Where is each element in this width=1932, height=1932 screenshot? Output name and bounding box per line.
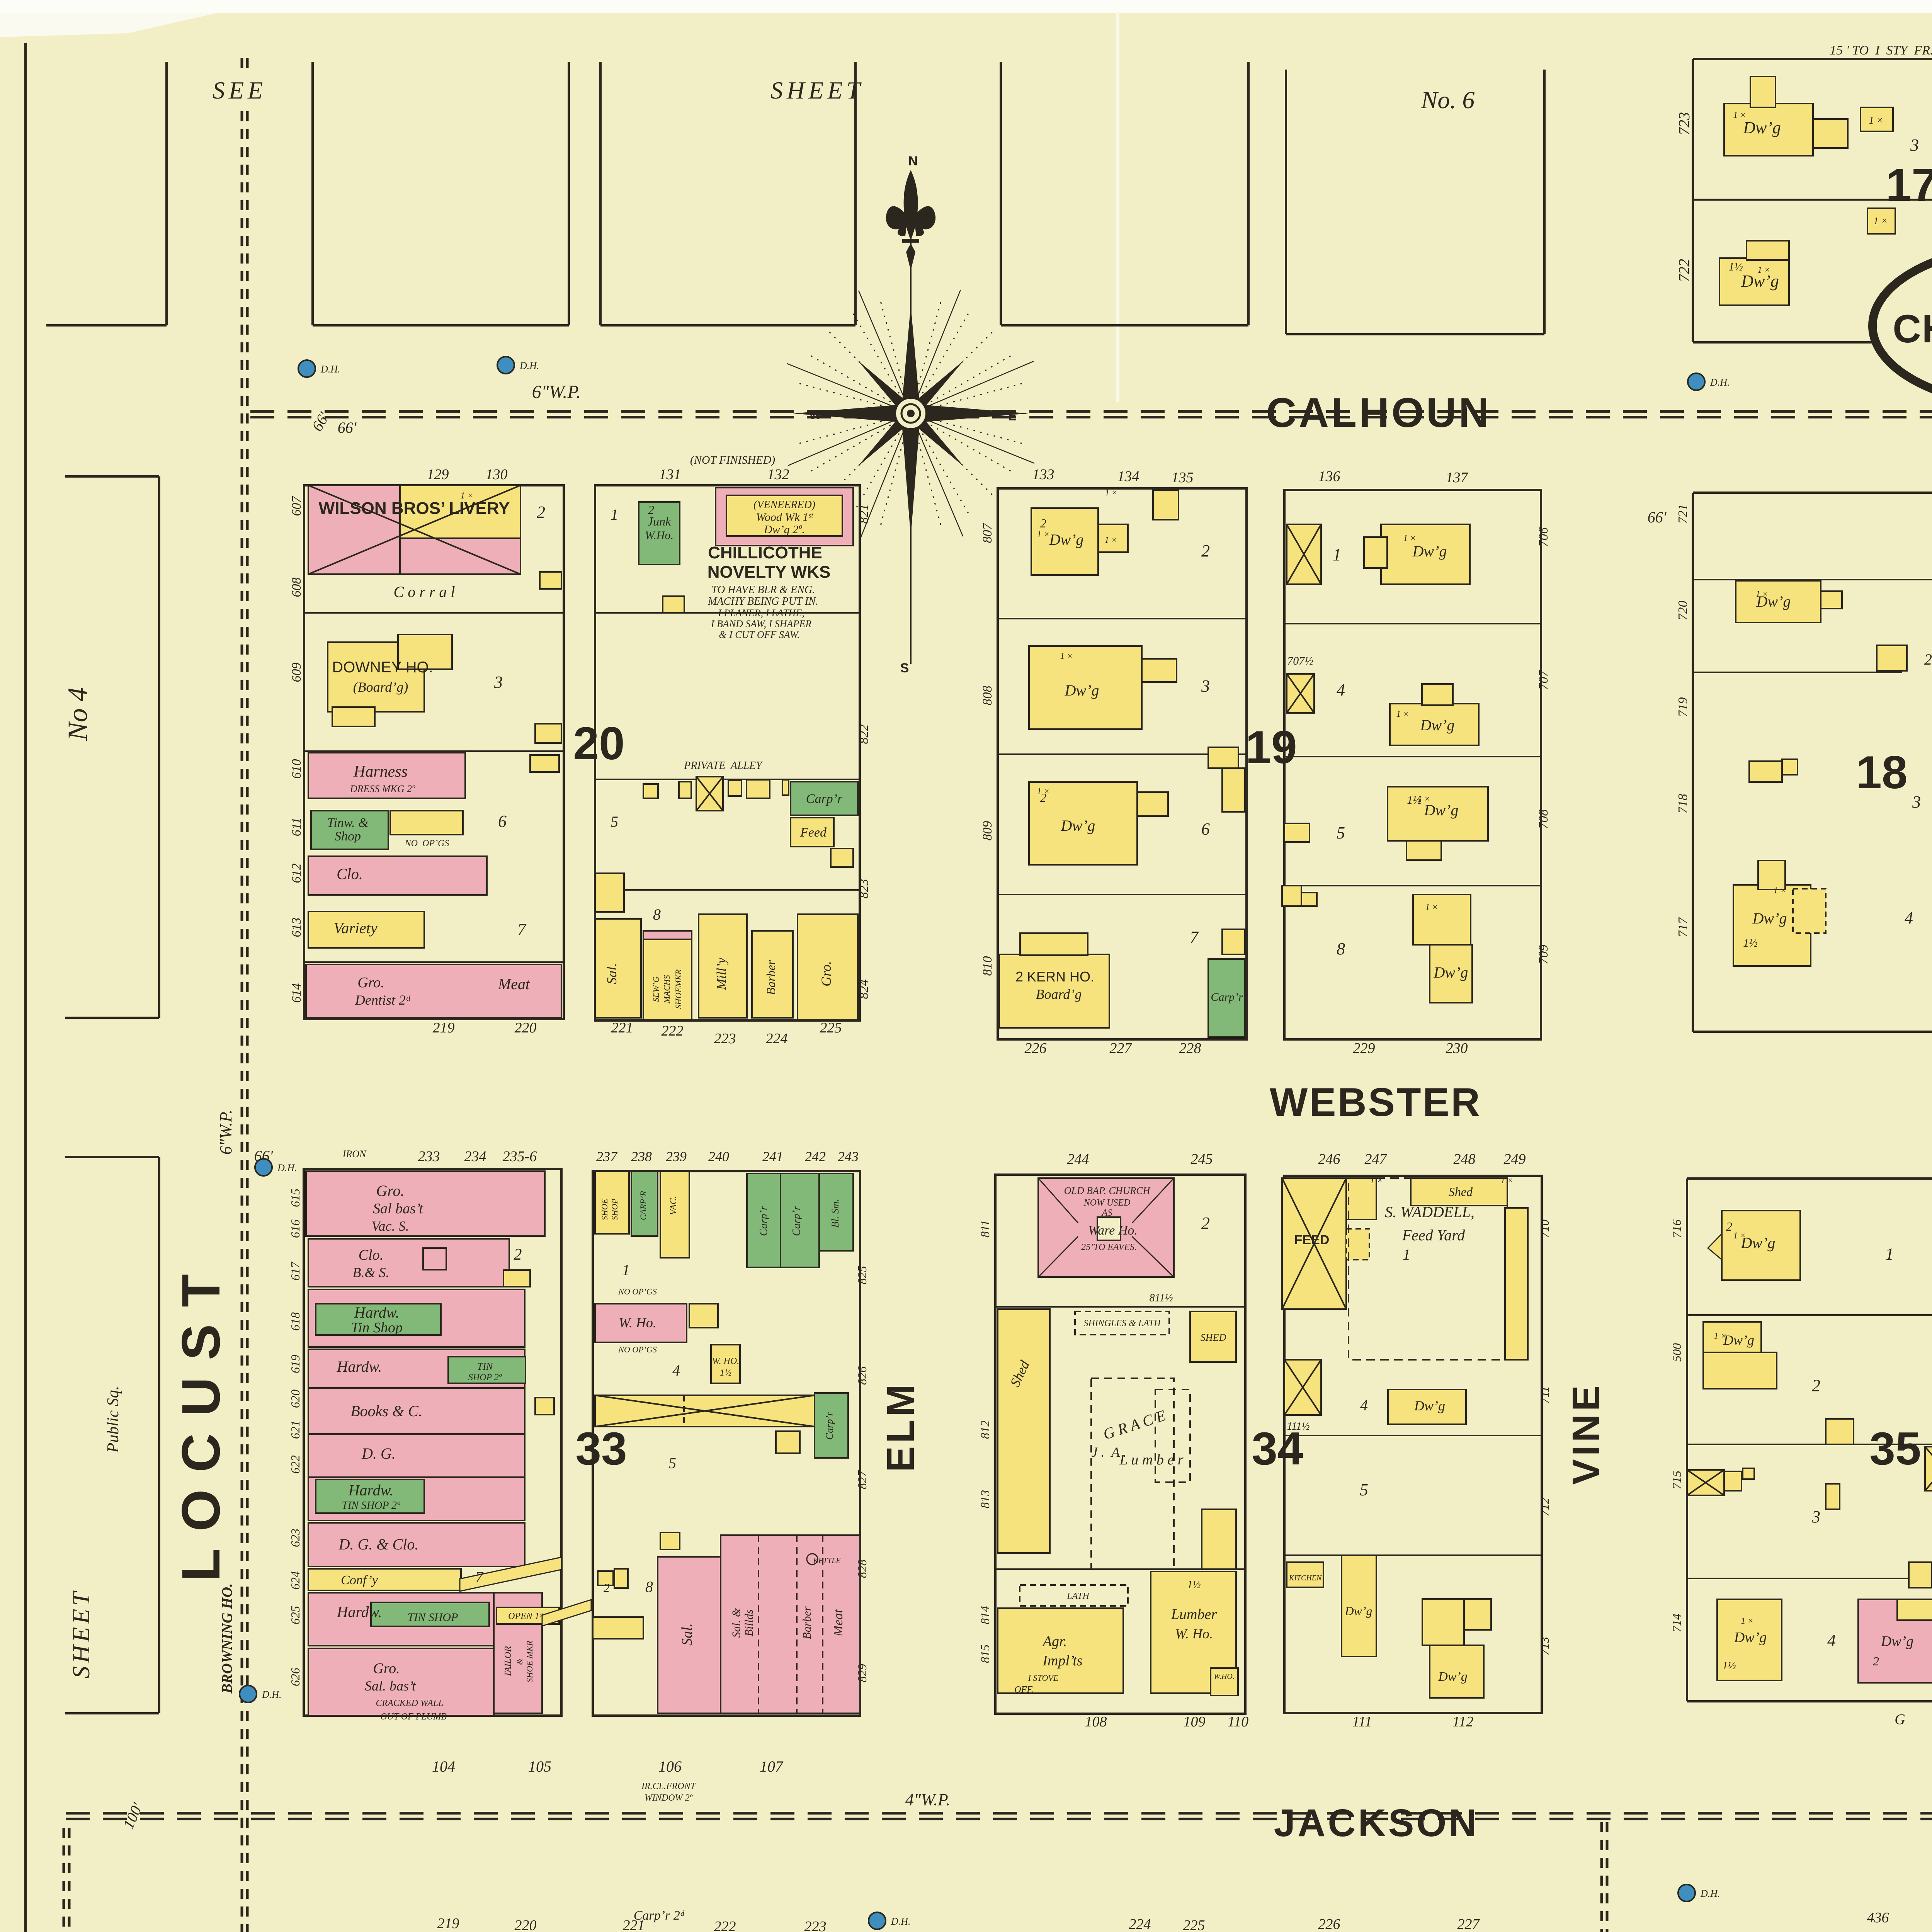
svg-text:Shed: Shed (1449, 1185, 1473, 1199)
svg-text:Public Sq.: Public Sq. (104, 1386, 122, 1453)
svg-text:CARP’R: CARP’R (638, 1191, 648, 1220)
svg-text:Mill’y: Mill’y (714, 957, 729, 990)
svg-text:Dw’g: Dw’g (1424, 801, 1459, 819)
svg-text:625: 625 (288, 1606, 302, 1624)
svg-text:8: 8 (645, 1578, 653, 1595)
svg-text:VAC.: VAC. (668, 1196, 679, 1215)
svg-text:230: 230 (1446, 1040, 1468, 1056)
svg-text:248: 248 (1454, 1151, 1476, 1167)
svg-text:221: 221 (611, 1020, 633, 1036)
svg-text:Dw’g: Dw’g (1881, 1633, 1913, 1650)
svg-text:D.H.: D.H. (320, 364, 340, 375)
svg-text:MACHY BEING PUT IN.: MACHY BEING PUT IN. (707, 595, 818, 607)
svg-text:WEBSTER: WEBSTER (1270, 1080, 1481, 1125)
svg-text:Carp’r: Carp’r (824, 1412, 835, 1440)
svg-text:1 ×: 1 × (1037, 529, 1050, 539)
svg-text:718: 718 (1676, 794, 1690, 814)
svg-text:106: 106 (658, 1758, 682, 1775)
svg-text:1 ×: 1 × (1758, 265, 1770, 275)
svg-text:Gro.: Gro. (373, 1660, 400, 1677)
svg-text:3: 3 (494, 673, 503, 692)
svg-text:823: 823 (857, 879, 871, 899)
svg-text:Dw’g: Dw’g (1434, 964, 1468, 981)
svg-text:812: 812 (978, 1420, 992, 1439)
svg-text:Dw’g: Dw’g (1438, 1670, 1468, 1684)
svg-text:714: 714 (1670, 1614, 1684, 1632)
svg-text:SHED: SHED (1201, 1332, 1226, 1343)
svg-text:1 ×: 1 × (1370, 1175, 1383, 1185)
svg-text:SHOE MKR: SHOE MKR (525, 1640, 534, 1682)
svg-text:LATH: LATH (1066, 1591, 1090, 1601)
svg-text:VINE: VINE (1565, 1382, 1608, 1485)
svg-text:W. Ho.: W. Ho. (619, 1315, 656, 1330)
svg-text:LOCUST: LOCUST (170, 1257, 231, 1582)
svg-text:Feed Yard: Feed Yard (1402, 1226, 1466, 1244)
svg-text:706: 706 (1536, 527, 1551, 547)
svg-text:8: 8 (1337, 939, 1345, 958)
svg-text:4: 4 (672, 1362, 680, 1379)
svg-text:Tin Shop: Tin Shop (351, 1320, 403, 1336)
svg-text:813: 813 (978, 1490, 992, 1509)
svg-text:Ware Ho.: Ware Ho. (1088, 1223, 1138, 1238)
svg-text:S: S (900, 661, 909, 675)
svg-text:244: 244 (1067, 1151, 1089, 1167)
svg-text:Hardw.: Hardw. (354, 1304, 400, 1321)
svg-text:Books & C.: Books & C. (350, 1402, 422, 1420)
svg-text:233: 233 (418, 1148, 440, 1165)
svg-text:110: 110 (1228, 1714, 1248, 1730)
svg-text:829: 829 (855, 1664, 869, 1682)
svg-text:709: 709 (1536, 945, 1551, 964)
svg-text:D. G. & Clo.: D. G. & Clo. (338, 1536, 419, 1553)
svg-text:I BAND SAW, I SHAPER: I BAND SAW, I SHAPER (711, 618, 811, 629)
svg-text:1 ×: 1 × (1774, 886, 1786, 895)
svg-text:ELM: ELM (879, 1381, 922, 1472)
svg-text:1½: 1½ (1187, 1579, 1201, 1591)
svg-text:B.& S.: B.& S. (353, 1265, 389, 1280)
svg-text:229: 229 (1353, 1040, 1375, 1056)
svg-text:DRESS MKG 2º: DRESS MKG 2º (350, 783, 415, 794)
svg-text:825: 825 (855, 1266, 869, 1284)
svg-text:222: 222 (714, 1918, 736, 1932)
svg-text:Sal bas’t: Sal bas’t (373, 1201, 423, 1217)
svg-text:612: 612 (289, 864, 304, 883)
svg-text:249: 249 (1504, 1151, 1526, 1167)
svg-text:G: G (1895, 1711, 1905, 1728)
svg-text:614: 614 (289, 983, 304, 1003)
svg-text:224: 224 (1129, 1916, 1151, 1932)
svg-text:811½: 811½ (1150, 1292, 1173, 1304)
svg-text:137: 137 (1446, 469, 1469, 486)
svg-text:7: 7 (475, 1568, 484, 1586)
svg-text:Bl. Sm.: Bl. Sm. (830, 1199, 841, 1228)
svg-text:135: 135 (1172, 469, 1194, 486)
svg-text:W. HO.: W. HO. (712, 1356, 739, 1366)
svg-text:1: 1 (1403, 1246, 1410, 1263)
svg-text:223: 223 (804, 1918, 827, 1932)
svg-text:2: 2 (1040, 516, 1046, 530)
svg-text:Hardw.: Hardw. (348, 1481, 394, 1499)
svg-text:No 4: No 4 (62, 687, 93, 741)
svg-text:(NOT FINISHED): (NOT FINISHED) (690, 454, 775, 466)
svg-text:W. Ho.: W. Ho. (1175, 1626, 1213, 1641)
svg-text:SHEET: SHEET (770, 77, 864, 104)
svg-text:717: 717 (1676, 917, 1690, 937)
svg-text:107: 107 (760, 1758, 784, 1775)
svg-text:W: W (809, 408, 822, 422)
svg-text:CHILLICOTHE: CHILLICOTHE (708, 543, 822, 562)
svg-text:129: 129 (427, 466, 449, 483)
svg-text:4: 4 (1905, 908, 1913, 927)
svg-text:3: 3 (1811, 1507, 1820, 1526)
svg-text:(Board’g): (Board’g) (353, 679, 408, 695)
svg-text:66': 66' (1648, 509, 1667, 526)
svg-text:6"W.P.: 6"W.P. (216, 1110, 235, 1155)
svg-text:246: 246 (1318, 1151, 1340, 1167)
svg-text:TO HAVE BLR & ENG.: TO HAVE BLR & ENG. (711, 584, 815, 596)
svg-text:OPEN 1ˢᵗ: OPEN 1ˢᵗ (508, 1611, 544, 1621)
svg-text:Dw’g: Dw’g (1344, 1604, 1372, 1618)
svg-text:W.Ho.: W.Ho. (645, 529, 673, 542)
svg-text:NO OP’GS: NO OP’GS (405, 838, 449, 849)
svg-text:1 ×: 1 × (1741, 1616, 1754, 1626)
svg-text:35: 35 (1869, 1423, 1921, 1475)
svg-text:Sal.: Sal. (604, 963, 619, 984)
svg-text:CALHOUN: CALHOUN (1266, 389, 1491, 436)
svg-text:810: 810 (980, 956, 995, 976)
svg-text:132: 132 (767, 466, 789, 483)
svg-text:1 ×: 1 × (1060, 651, 1073, 661)
svg-text:4: 4 (1360, 1396, 1368, 1414)
svg-text:FEED: FEED (1294, 1233, 1330, 1247)
svg-text:Sal. bas’t: Sal. bas’t (365, 1678, 416, 1694)
svg-text:721: 721 (1676, 504, 1690, 524)
svg-text:6"W.P.: 6"W.P. (532, 382, 581, 402)
svg-text:436: 436 (1867, 1910, 1889, 1926)
svg-text:SHOE: SHOE (600, 1198, 609, 1220)
svg-text:607: 607 (289, 496, 304, 516)
svg-text:241: 241 (762, 1149, 783, 1164)
svg-text:WINDOW 2º: WINDOW 2º (645, 1793, 693, 1803)
svg-text:619: 619 (288, 1355, 302, 1373)
svg-text:624: 624 (288, 1571, 302, 1590)
svg-text:Lumber: Lumber (1171, 1606, 1217, 1622)
svg-text:219: 219 (433, 1020, 455, 1036)
svg-text:Sal.: Sal. (679, 1623, 695, 1646)
svg-text:BROWNING HO.: BROWNING HO. (219, 1583, 235, 1694)
svg-text:109: 109 (1184, 1714, 1206, 1730)
svg-text:2: 2 (1924, 651, 1932, 668)
svg-text:OFF.: OFF. (1014, 1685, 1034, 1695)
svg-text:I PLANER, I LATHE,: I PLANER, I LATHE, (718, 607, 804, 619)
svg-text:Clo.: Clo. (359, 1247, 383, 1263)
svg-text:Barber: Barber (764, 960, 778, 995)
svg-text:19: 19 (1245, 721, 1297, 773)
svg-text:Dw’g: Dw’g (1414, 1398, 1445, 1413)
svg-text:N: N (908, 154, 918, 168)
svg-text:622: 622 (288, 1455, 302, 1474)
svg-text:TAILOR: TAILOR (503, 1646, 513, 1677)
svg-text:DOWNEY HO.: DOWNEY HO. (332, 659, 433, 676)
svg-text:7: 7 (1190, 928, 1199, 947)
svg-text:AS: AS (1101, 1208, 1112, 1218)
svg-text:PRIVATE ALLEY: PRIVATE ALLEY (684, 760, 763, 772)
svg-text:811: 811 (978, 1220, 992, 1238)
svg-text:SHOP: SHOP (610, 1199, 619, 1220)
svg-text:NO OP’GS: NO OP’GS (618, 1287, 657, 1296)
svg-text:615: 615 (288, 1189, 302, 1207)
svg-text:1: 1 (611, 506, 618, 523)
svg-text:NOVELTY WKS: NOVELTY WKS (707, 563, 831, 582)
svg-text:715: 715 (1670, 1471, 1684, 1489)
svg-text:7: 7 (517, 920, 527, 939)
svg-text:18: 18 (1856, 747, 1907, 798)
svg-text:1 ×: 1 × (1105, 488, 1118, 497)
svg-text:L u m b e r: L u m b e r (1119, 1452, 1183, 1468)
svg-text:2: 2 (1812, 1376, 1820, 1395)
svg-text:Dw’g: Dw’g (1723, 1332, 1754, 1348)
svg-text:1 ×: 1 × (1418, 794, 1430, 804)
svg-text:108: 108 (1085, 1714, 1107, 1730)
svg-text:222: 222 (662, 1023, 684, 1039)
svg-text:3: 3 (1201, 677, 1210, 696)
svg-text:608: 608 (289, 578, 304, 597)
svg-text:TIN SHOP: TIN SHOP (408, 1611, 458, 1624)
svg-text:111½: 111½ (1287, 1420, 1310, 1432)
svg-text:Dw’g: Dw’g (1752, 910, 1787, 927)
svg-text:219: 219 (437, 1915, 459, 1932)
svg-text:713: 713 (1537, 1637, 1551, 1655)
svg-text:828: 828 (855, 1560, 869, 1578)
svg-text:1: 1 (622, 1261, 630, 1279)
svg-text:D.H.: D.H. (277, 1162, 297, 1173)
svg-text:SEE: SEE (213, 77, 267, 104)
svg-text:620: 620 (288, 1389, 302, 1408)
svg-text:808: 808 (980, 686, 995, 706)
svg-text:1 ×: 1 × (1396, 709, 1409, 719)
svg-text:225: 225 (820, 1020, 842, 1036)
svg-text:17: 17 (1886, 159, 1932, 211)
svg-text:Dw’g: Dw’g (1420, 716, 1455, 734)
svg-text:Board’g: Board’g (1036, 986, 1082, 1002)
svg-text:Dw’g: Dw’g (1061, 817, 1095, 834)
svg-text:Feed: Feed (800, 825, 827, 840)
svg-text:1½: 1½ (1728, 260, 1743, 273)
svg-text:Carp’r: Carp’r (806, 792, 843, 806)
svg-text:OUT OF PLUMB: OUT OF PLUMB (380, 1712, 447, 1722)
svg-text:228: 228 (1179, 1040, 1201, 1056)
svg-text:220: 220 (515, 1917, 537, 1932)
svg-text:D.H.: D.H. (1700, 1888, 1720, 1899)
svg-text:237: 237 (596, 1149, 618, 1164)
svg-text:2 KERN HO.: 2 KERN HO. (1015, 969, 1094, 985)
svg-text:1½: 1½ (1723, 1660, 1736, 1672)
svg-text:Billds: Billds (743, 1609, 755, 1636)
svg-text:(VENEERED): (VENEERED) (753, 499, 815, 511)
svg-text:821: 821 (857, 504, 871, 524)
svg-text:1 ×: 1 × (1425, 902, 1438, 912)
svg-text:2: 2 (514, 1246, 522, 1264)
svg-text:CHILLICOTHE: CHILLICOTHE (1893, 307, 1932, 351)
svg-text:131: 131 (659, 466, 681, 483)
svg-text:247: 247 (1365, 1151, 1388, 1167)
svg-text:807: 807 (980, 523, 995, 543)
svg-text:Clo.: Clo. (337, 865, 363, 883)
svg-text:226: 226 (1318, 1916, 1340, 1932)
svg-text:Sal. &: Sal. & (730, 1608, 743, 1638)
svg-text:D.H.: D.H. (519, 360, 539, 371)
svg-text:Wood Wk 1ˢᵗ: Wood Wk 1ˢᵗ (756, 511, 814, 524)
svg-text:245: 245 (1191, 1151, 1213, 1167)
svg-text:623: 623 (288, 1529, 302, 1547)
svg-text:5: 5 (1337, 823, 1345, 842)
svg-text:814: 814 (978, 1606, 992, 1624)
svg-text:1 ×: 1 × (1501, 1175, 1514, 1185)
svg-text:No. 6: No. 6 (1421, 86, 1475, 114)
svg-text:6: 6 (498, 812, 507, 831)
svg-text:1 ×: 1 × (1403, 533, 1416, 543)
svg-text:C o r r a l: C o r r a l (394, 583, 455, 600)
svg-text:2: 2 (1873, 1654, 1879, 1668)
svg-text:243: 243 (838, 1149, 859, 1164)
svg-text:6: 6 (1201, 820, 1210, 838)
svg-text:239: 239 (666, 1149, 687, 1164)
svg-text:240: 240 (708, 1149, 729, 1164)
svg-text:25’TO EAVES.: 25’TO EAVES. (1081, 1242, 1137, 1252)
svg-text:2: 2 (1726, 1219, 1732, 1233)
svg-text:33: 33 (575, 1423, 627, 1475)
svg-text:D.H.: D.H. (262, 1689, 282, 1700)
svg-text:2: 2 (1201, 541, 1210, 560)
svg-text:66': 66' (338, 419, 357, 436)
svg-text:238: 238 (631, 1149, 652, 1164)
svg-text:224: 224 (766, 1031, 788, 1047)
svg-text:134: 134 (1117, 468, 1139, 485)
svg-text:W.HO.: W.HO. (1214, 1672, 1235, 1681)
svg-text:KITCHEN: KITCHEN (1289, 1574, 1322, 1582)
svg-text:D.H.: D.H. (1710, 377, 1730, 388)
svg-text:827: 827 (855, 1470, 869, 1489)
svg-text:824: 824 (857, 980, 871, 999)
svg-text:220: 220 (515, 1020, 537, 1036)
svg-text:720: 720 (1676, 601, 1690, 621)
svg-text:1: 1 (1333, 545, 1341, 564)
svg-text:105: 105 (528, 1758, 551, 1775)
svg-text:4: 4 (1337, 680, 1345, 699)
svg-text:136: 136 (1318, 468, 1340, 485)
svg-text:104: 104 (432, 1758, 455, 1775)
svg-text:SHOEMKR: SHOEMKR (673, 969, 683, 1009)
svg-text:Harness: Harness (353, 763, 408, 781)
svg-text:226: 226 (1025, 1040, 1047, 1056)
svg-text:1½: 1½ (720, 1368, 731, 1378)
svg-text:1 ×: 1 × (1714, 1331, 1727, 1341)
svg-text:Carp’r: Carp’r (791, 1206, 803, 1236)
svg-text:707½: 707½ (1287, 655, 1313, 667)
svg-text:221: 221 (623, 1917, 645, 1932)
svg-text:716: 716 (1670, 1219, 1684, 1238)
svg-text:616: 616 (288, 1219, 302, 1238)
svg-text:2: 2 (1201, 1214, 1210, 1233)
svg-text:4: 4 (1827, 1631, 1836, 1650)
svg-text:235-6: 235-6 (503, 1148, 537, 1165)
svg-text:130: 130 (486, 466, 508, 483)
svg-text:710: 710 (1537, 1219, 1551, 1238)
svg-text:Variety: Variety (333, 919, 378, 937)
svg-text:3: 3 (1912, 793, 1921, 811)
svg-text:Dw’g: Dw’g (1065, 682, 1099, 699)
svg-text:D.H.: D.H. (891, 1916, 911, 1927)
svg-text:1 ×: 1 × (1105, 535, 1117, 545)
svg-text:15 ' TO I STY FR. D.: 15 ' TO I STY FR. D. (1830, 43, 1932, 58)
svg-text:707: 707 (1536, 670, 1551, 690)
svg-text:Tinw. &: Tinw. & (327, 816, 369, 830)
svg-text:Dw’g: Dw’g (1049, 531, 1084, 548)
svg-text:711: 711 (1537, 1386, 1551, 1404)
svg-text:& I CUT OFF SAW.: & I CUT OFF SAW. (719, 629, 799, 640)
svg-text:Carp’r: Carp’r (758, 1206, 770, 1236)
svg-text:20: 20 (573, 718, 624, 769)
svg-text:610: 610 (289, 759, 304, 779)
svg-text:133: 133 (1032, 466, 1054, 483)
svg-text:TIN: TIN (477, 1361, 493, 1372)
svg-text:Gro.: Gro. (357, 975, 384, 991)
svg-text:3: 3 (1910, 136, 1919, 155)
svg-text:1 ×: 1 × (1733, 110, 1746, 120)
svg-text:SHINGLES & LATH: SHINGLES & LATH (1083, 1318, 1161, 1328)
svg-text:112: 112 (1452, 1714, 1473, 1730)
svg-text:223: 223 (714, 1031, 736, 1047)
svg-text:Impl’ts: Impl’ts (1042, 1653, 1082, 1669)
svg-text:111: 111 (1352, 1714, 1372, 1730)
svg-text:225: 225 (1183, 1917, 1205, 1932)
svg-text:MACHS: MACHS (662, 975, 672, 1003)
svg-text:Dw’g: Dw’g (1412, 543, 1447, 560)
svg-text:Meat: Meat (831, 1609, 845, 1637)
svg-text:NO OP’GS: NO OP’GS (618, 1345, 657, 1354)
svg-text:611: 611 (289, 818, 304, 836)
svg-text:Carp’r: Carp’r (1211, 991, 1243, 1003)
svg-text:OLD BAP. CHURCH: OLD BAP. CHURCH (1064, 1185, 1151, 1196)
svg-text:712: 712 (1537, 1498, 1551, 1516)
svg-text:500: 500 (1670, 1343, 1684, 1362)
svg-text:SHEET: SHEET (67, 1589, 95, 1679)
svg-text:Agr.: Agr. (1042, 1633, 1067, 1650)
svg-text:609: 609 (289, 663, 304, 682)
svg-text:4"W.P.: 4"W.P. (905, 1790, 950, 1809)
svg-text:E: E (1008, 409, 1017, 423)
svg-text:2: 2 (537, 503, 545, 522)
svg-text:Dw’g: Dw’g (1734, 1629, 1767, 1646)
svg-text:1 ×: 1 × (1873, 215, 1888, 226)
svg-text:Barber: Barber (801, 1606, 813, 1639)
svg-text:8: 8 (653, 906, 661, 923)
svg-text:5: 5 (668, 1454, 676, 1472)
svg-text:613: 613 (289, 918, 304, 937)
svg-text:Hardw.: Hardw. (337, 1358, 382, 1375)
svg-text:Dentist 2ᵈ: Dentist 2ᵈ (355, 992, 411, 1008)
svg-text:Shop: Shop (335, 829, 361, 844)
svg-text:KETTLE: KETTLE (813, 1556, 840, 1565)
svg-text:Conf’y: Conf’y (341, 1573, 378, 1587)
svg-text:D. G.: D. G. (361, 1445, 396, 1462)
svg-text:JACKSON: JACKSON (1274, 1801, 1479, 1845)
svg-text:1 ×: 1 × (1037, 786, 1050, 796)
svg-text:1 ×: 1 × (1756, 589, 1769, 599)
svg-text:2: 2 (604, 1581, 610, 1595)
svg-text:234: 234 (464, 1148, 486, 1165)
svg-text:826: 826 (855, 1366, 869, 1385)
